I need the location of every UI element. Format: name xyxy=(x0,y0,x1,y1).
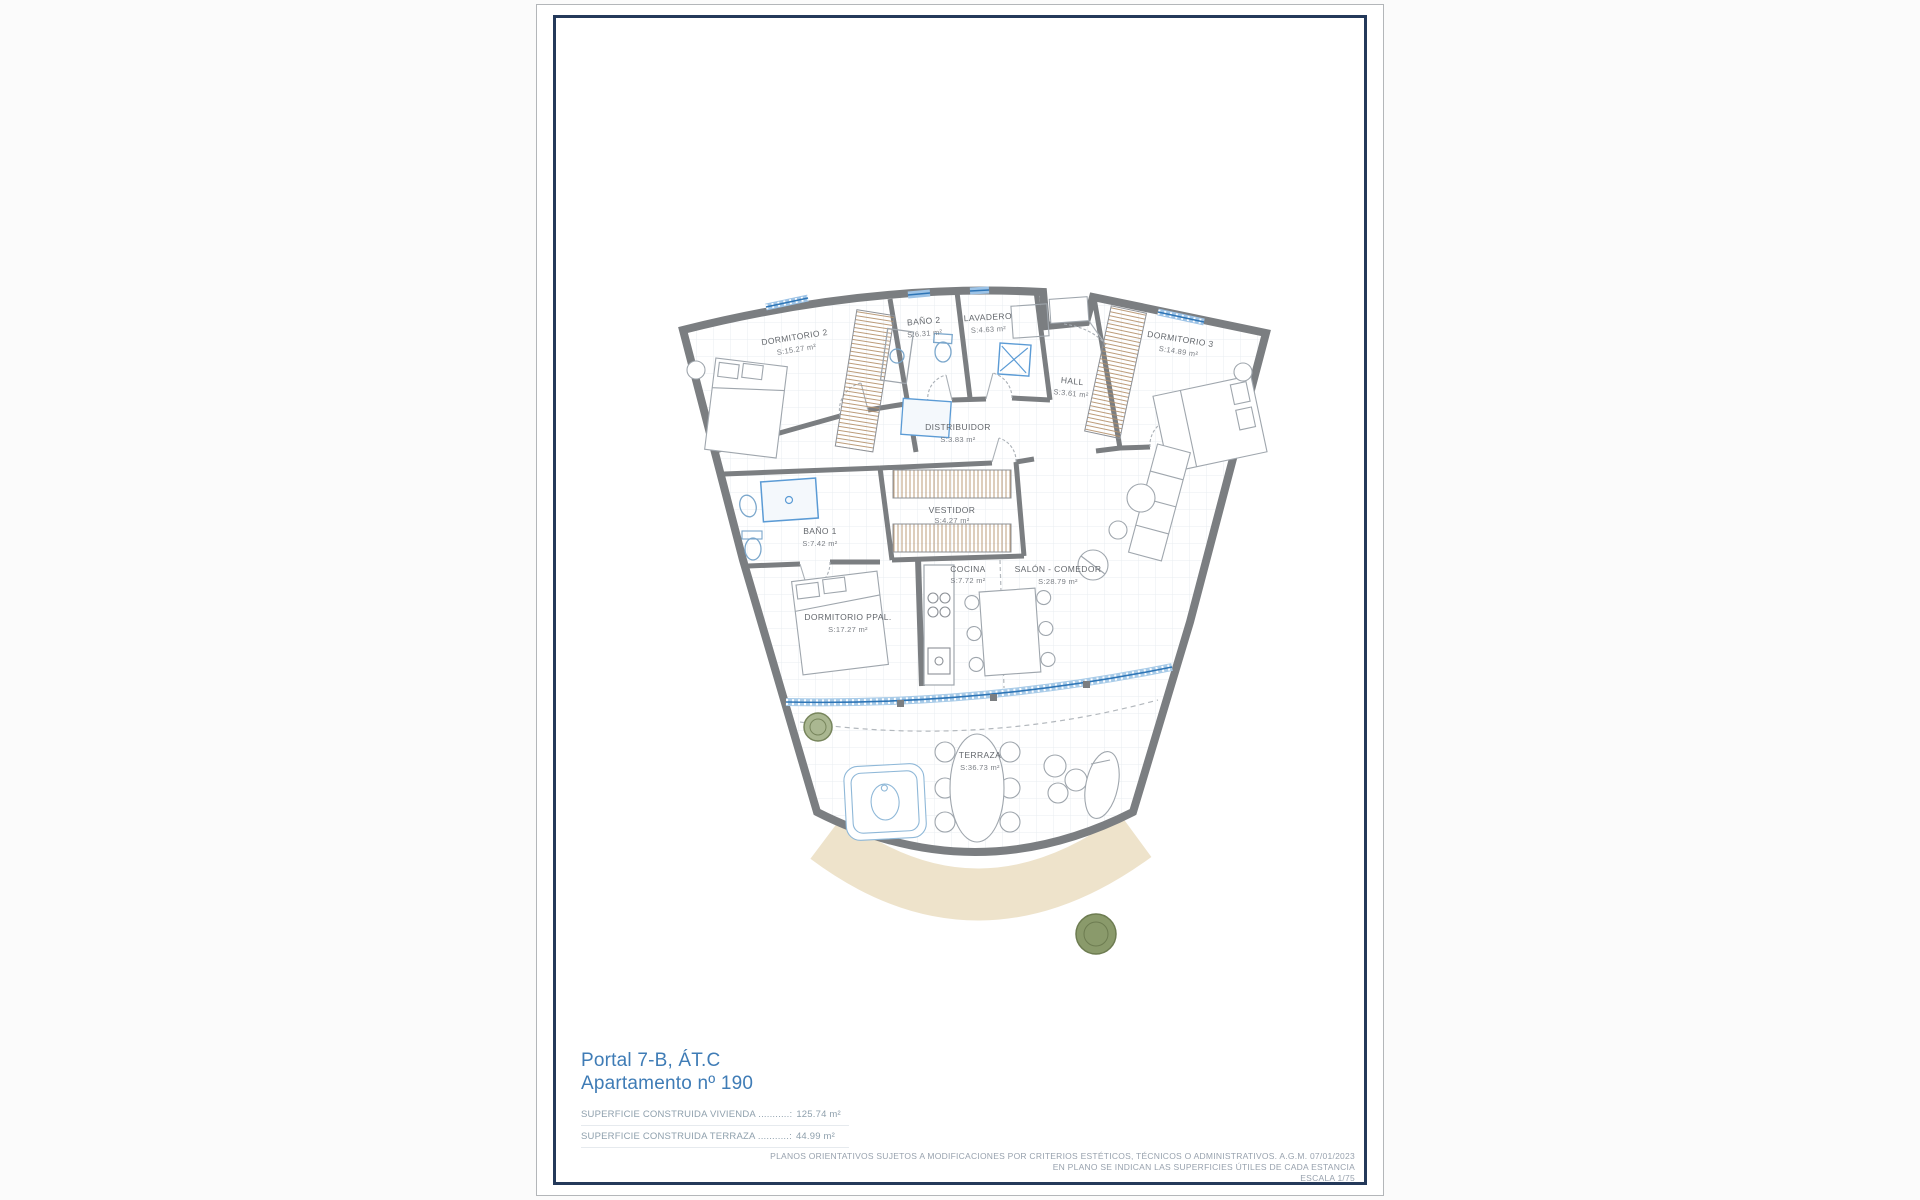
screenshot-stage: Portal 7-B, ÁT.C Apartamento nº 190 SUPE… xyxy=(0,0,1920,1200)
sheet-border-frame xyxy=(553,15,1367,1185)
portal-title: Portal 7-B, ÁT.C xyxy=(581,1049,881,1072)
disclaimer-line-2: EN PLANO SE INDICAN LAS SUPERFICIES ÚTIL… xyxy=(770,1162,1355,1173)
disclaimer-line-3: ESCALA 1/75 xyxy=(770,1173,1355,1184)
apartment-title: Apartamento nº 190 xyxy=(581,1072,881,1095)
title-block: Portal 7-B, ÁT.C Apartamento nº 190 SUPE… xyxy=(581,1049,881,1153)
surface-row-terraza: SUPERFICIE CONSTRUIDA TERRAZA ..........… xyxy=(581,1131,849,1148)
disclaimer-line-1: PLANOS ORIENTATIVOS SUJETOS A MODIFICACI… xyxy=(770,1151,1355,1162)
surface-row-vivienda: SUPERFICIE CONSTRUIDA VIVIENDA .........… xyxy=(581,1109,849,1126)
plan-sheet: Portal 7-B, ÁT.C Apartamento nº 190 SUPE… xyxy=(536,4,1384,1196)
surface-table: SUPERFICIE CONSTRUIDA VIVIENDA .........… xyxy=(581,1109,849,1148)
disclaimer-block: PLANOS ORIENTATIVOS SUJETOS A MODIFICACI… xyxy=(770,1151,1355,1184)
